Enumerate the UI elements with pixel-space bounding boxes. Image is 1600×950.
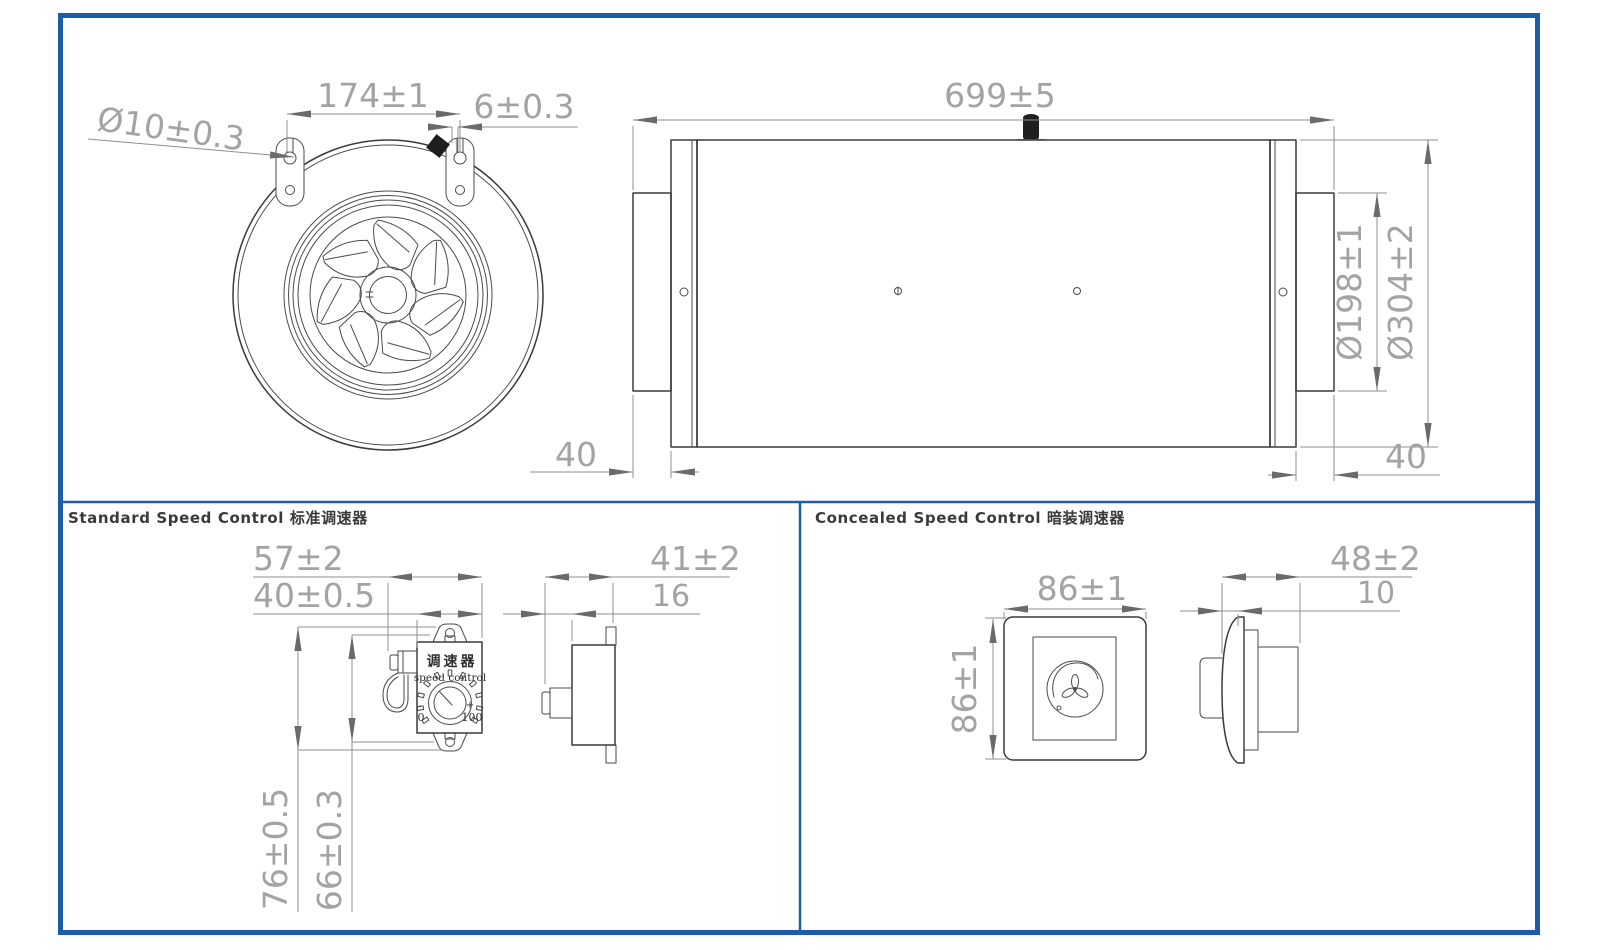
scale-max-label: 100 xyxy=(462,711,483,724)
fan-front-view: 174±1 Ø10±0.3 6±0.3 xyxy=(88,76,578,450)
concealed-controller-side-view xyxy=(1200,617,1298,763)
fan-body xyxy=(697,140,1270,447)
concealed-panel-title: Concealed Speed Control 暗装调速器 xyxy=(815,509,1125,527)
technical-drawing-page: 174±1 Ø10±0.3 6±0.3 xyxy=(0,0,1600,950)
dim-plate-thickness: 10 xyxy=(1357,576,1395,611)
fan-side-dimensions: 699±5 Ø198±1 Ø304±2 40 xyxy=(530,76,1440,481)
duct-collar-left xyxy=(633,193,671,391)
dim-depth-knob: 16 xyxy=(652,579,690,614)
standard-controller-side-view xyxy=(542,627,616,763)
dim-width-body: 40±0.5 xyxy=(253,576,375,615)
concealed-speed-control-panel: Concealed Speed Control 暗装调速器 86±1 xyxy=(815,509,1421,763)
controller-label-cn: 调速器 xyxy=(427,653,478,670)
dim-plate-width: 86±1 xyxy=(1037,569,1128,608)
dim-duct-diameter: Ø198±1 xyxy=(1330,223,1369,361)
impeller-hub xyxy=(360,267,416,323)
dim-depth-overall-concealed: 48±2 xyxy=(1330,539,1421,578)
mounting-bracket-left xyxy=(276,138,304,206)
fan-front-dimensions: 174±1 Ø10±0.3 6±0.3 xyxy=(88,76,578,159)
cable-bushing xyxy=(383,651,417,712)
fan-icon xyxy=(1061,675,1090,700)
dim-height-overall: 76±0.5 xyxy=(256,788,295,910)
dim-collar-right: 40 xyxy=(1385,437,1427,476)
dim-overall-length: 699±5 xyxy=(944,76,1056,115)
standard-panel-title: Standard Speed Control 标准调速器 xyxy=(68,509,368,527)
dim-gland-offset: 6±0.3 xyxy=(473,87,574,126)
dim-height-body: 66±0.3 xyxy=(310,789,349,911)
standard-controller-front-view: 调速器 speed control - xyxy=(383,624,487,751)
impeller-blades xyxy=(308,220,465,376)
duct-collar-right xyxy=(1296,193,1334,391)
dim-bracket-hole-diameter: Ø10±0.3 xyxy=(95,99,247,158)
dim-body-diameter: Ø304±2 xyxy=(1381,223,1420,361)
dim-collar-left: 40 xyxy=(555,435,597,474)
dim-bracket-spacing: 174±1 xyxy=(317,76,429,115)
standard-side-dimensions: 41±2 16 xyxy=(503,539,741,684)
scale-plus-sign: + xyxy=(466,700,474,711)
scale-min-label: 0 xyxy=(418,711,425,724)
dim-depth-overall: 41±2 xyxy=(650,539,741,578)
cable-gland-top-icon xyxy=(1018,114,1045,140)
dim-plate-height: 86±1 xyxy=(945,644,984,735)
concealed-controller-front-view xyxy=(1004,617,1146,760)
drawing-canvas: 174±1 Ø10±0.3 6±0.3 xyxy=(0,0,1600,950)
concealed-side-dimensions: 48±2 10 xyxy=(1180,539,1421,654)
fan-side-view: 699±5 Ø198±1 Ø304±2 40 xyxy=(530,76,1440,481)
standard-speed-control-panel: Standard Speed Control 标准调速器 调速器 speed c… xyxy=(68,509,741,912)
dim-width-overall: 57±2 xyxy=(253,539,344,578)
